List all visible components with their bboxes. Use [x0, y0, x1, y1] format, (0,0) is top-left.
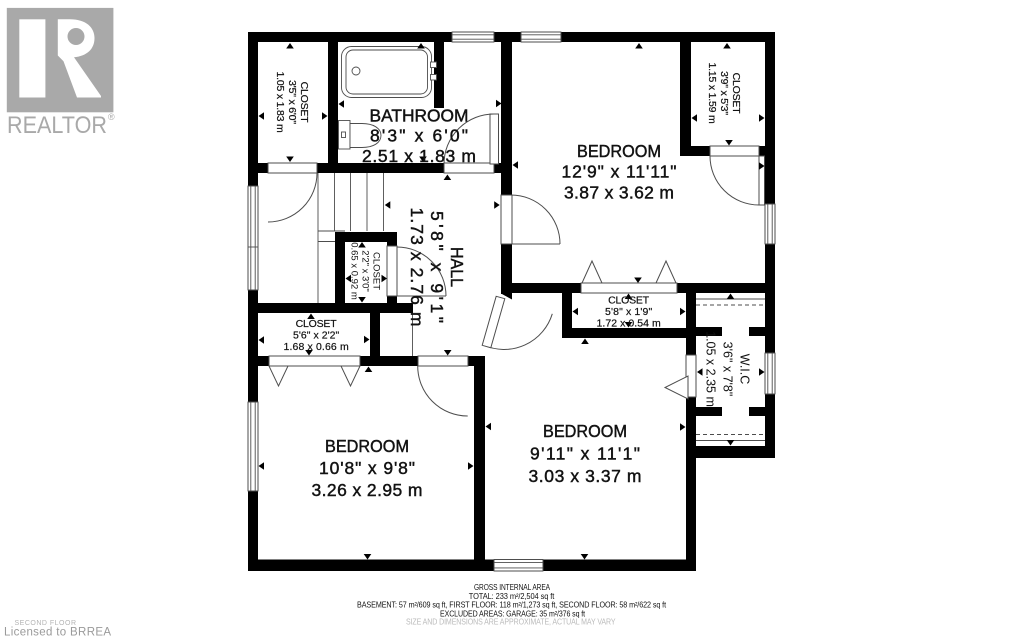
- svg-text:CLOSET: CLOSET: [296, 318, 338, 330]
- svg-text:3'6" x 7'8": 3'6" x 7'8": [721, 342, 735, 397]
- svg-text:1.15 x 1.59 m: 1.15 x 1.59 m: [706, 62, 718, 123]
- svg-text:5'6" x 2'2": 5'6" x 2'2": [293, 329, 339, 341]
- svg-text:W.I.C: W.I.C: [738, 354, 752, 385]
- svg-text:GROSS INTERNAL AREA: GROSS INTERNAL AREA: [474, 583, 551, 592]
- svg-text:BASEMENT: 57 m²/609 sq ft, FIR: BASEMENT: 57 m²/609 sq ft, FIRST FLOOR: …: [357, 601, 667, 610]
- svg-text:5'8" x 1'9": 5'8" x 1'9": [605, 306, 652, 318]
- svg-text:1.68 x 0.66 m: 1.68 x 0.66 m: [284, 341, 349, 353]
- svg-text:CLOSET: CLOSET: [298, 82, 310, 124]
- svg-text:HALL: HALL: [447, 247, 467, 287]
- svg-text:CLOSET: CLOSET: [730, 73, 742, 115]
- svg-text:3.26 x 2.95 m: 3.26 x 2.95 m: [312, 480, 423, 500]
- svg-text:10'8" x 9'8": 10'8" x 9'8": [319, 458, 415, 478]
- svg-text:1.05 x 1.83 m: 1.05 x 1.83 m: [274, 71, 286, 132]
- svg-text:TOTAL: 233 m²/2,504 sq ft: TOTAL: 233 m²/2,504 sq ft: [469, 592, 555, 601]
- svg-text:BEDROOM: BEDROOM: [577, 141, 661, 161]
- svg-text:CLOSET: CLOSET: [371, 252, 382, 290]
- svg-text:0.65 x 0.92 m: 0.65 x 0.92 m: [349, 242, 360, 300]
- svg-text:BEDROOM: BEDROOM: [543, 421, 627, 441]
- svg-text:REALTOR: REALTOR: [7, 112, 107, 139]
- svg-text:3'5" x 6'0": 3'5" x 6'0": [286, 80, 298, 124]
- svg-text:1.72 x 0.54 m: 1.72 x 0.54 m: [597, 318, 661, 330]
- svg-text:12'9" x 11'11": 12'9" x 11'11": [562, 162, 677, 182]
- svg-text:1.73 x 2.76 m: 1.73 x 2.76 m: [407, 208, 427, 327]
- svg-text:Licensed to BRREA: Licensed to BRREA: [4, 627, 111, 639]
- svg-text:9'11" x 11'1": 9'11" x 11'1": [530, 444, 640, 464]
- svg-text:CLOSET: CLOSET: [608, 294, 650, 306]
- svg-text:2.51 x 1.83 m: 2.51 x 1.83 m: [362, 146, 476, 166]
- svg-text:3'9" x 5'3": 3'9" x 5'3": [718, 71, 730, 115]
- svg-text:BATHROOM: BATHROOM: [370, 106, 469, 126]
- svg-text:SIZE AND DIMENSIONS ARE APPROX: SIZE AND DIMENSIONS ARE APPROXIMATE, ACT…: [406, 618, 616, 627]
- svg-text:8'3" x 6'0": 8'3" x 6'0": [370, 126, 468, 146]
- svg-text:3.03 x 3.37 m: 3.03 x 3.37 m: [529, 466, 642, 486]
- svg-text:2'2" x 3'0": 2'2" x 3'0": [360, 250, 371, 292]
- svg-text:BEDROOM: BEDROOM: [325, 436, 409, 456]
- svg-text:1.05 x 2.35 m: 1.05 x 2.35 m: [704, 331, 718, 407]
- svg-text:3.87 x 3.62 m: 3.87 x 3.62 m: [564, 183, 674, 203]
- svg-text:®: ®: [108, 112, 115, 122]
